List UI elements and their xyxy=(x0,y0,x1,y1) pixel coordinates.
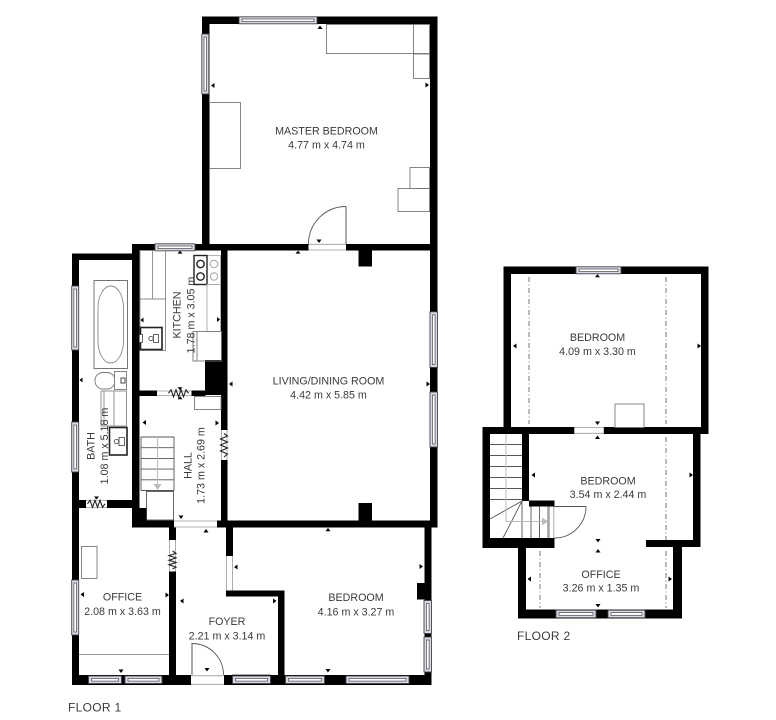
svg-text:4.09 m x 3.30 m: 4.09 m x 3.30 m xyxy=(559,346,636,358)
svg-text:3.26 m x 1.35 m: 3.26 m x 1.35 m xyxy=(563,583,640,595)
svg-text:1.08 m x 5.18 m: 1.08 m x 5.18 m xyxy=(99,408,111,485)
svg-text:LIVING/DINING ROOM: LIVING/DINING ROOM xyxy=(273,376,385,388)
svg-text:BEDROOM: BEDROOM xyxy=(570,332,625,344)
svg-text:BEDROOM: BEDROOM xyxy=(580,476,635,488)
svg-text:1.78 m x 3.05 m: 1.78 m x 3.05 m xyxy=(186,277,198,354)
svg-text:4.77 m x 4.74 m: 4.77 m x 4.74 m xyxy=(288,140,365,152)
svg-text:HALL: HALL xyxy=(183,452,195,479)
svg-text:4.42 m x 5.85 m: 4.42 m x 5.85 m xyxy=(290,390,367,402)
svg-text:FOYER: FOYER xyxy=(209,616,246,628)
svg-text:KITCHEN: KITCHEN xyxy=(172,292,184,339)
svg-text:3.54 m x 2.44 m: 3.54 m x 2.44 m xyxy=(570,489,647,501)
svg-text:OFFICE: OFFICE xyxy=(103,592,142,604)
svg-text:2.08 m x 3.63 m: 2.08 m x 3.63 m xyxy=(84,606,161,618)
svg-text:2.21 m x 3.14 m: 2.21 m x 3.14 m xyxy=(189,631,266,643)
svg-text:MASTER BEDROOM: MASTER BEDROOM xyxy=(275,126,378,138)
svg-text:OFFICE: OFFICE xyxy=(581,569,620,581)
svg-text:4.16 m x 3.27 m: 4.16 m x 3.27 m xyxy=(318,607,395,619)
svg-text:BEDROOM: BEDROOM xyxy=(328,592,383,604)
svg-text:FLOOR 1: FLOOR 1 xyxy=(68,701,121,715)
svg-text:BATH: BATH xyxy=(86,432,98,460)
svg-text:1.73 m x 2.69 m: 1.73 m x 2.69 m xyxy=(196,427,208,504)
svg-text:FLOOR 2: FLOOR 2 xyxy=(517,629,570,643)
